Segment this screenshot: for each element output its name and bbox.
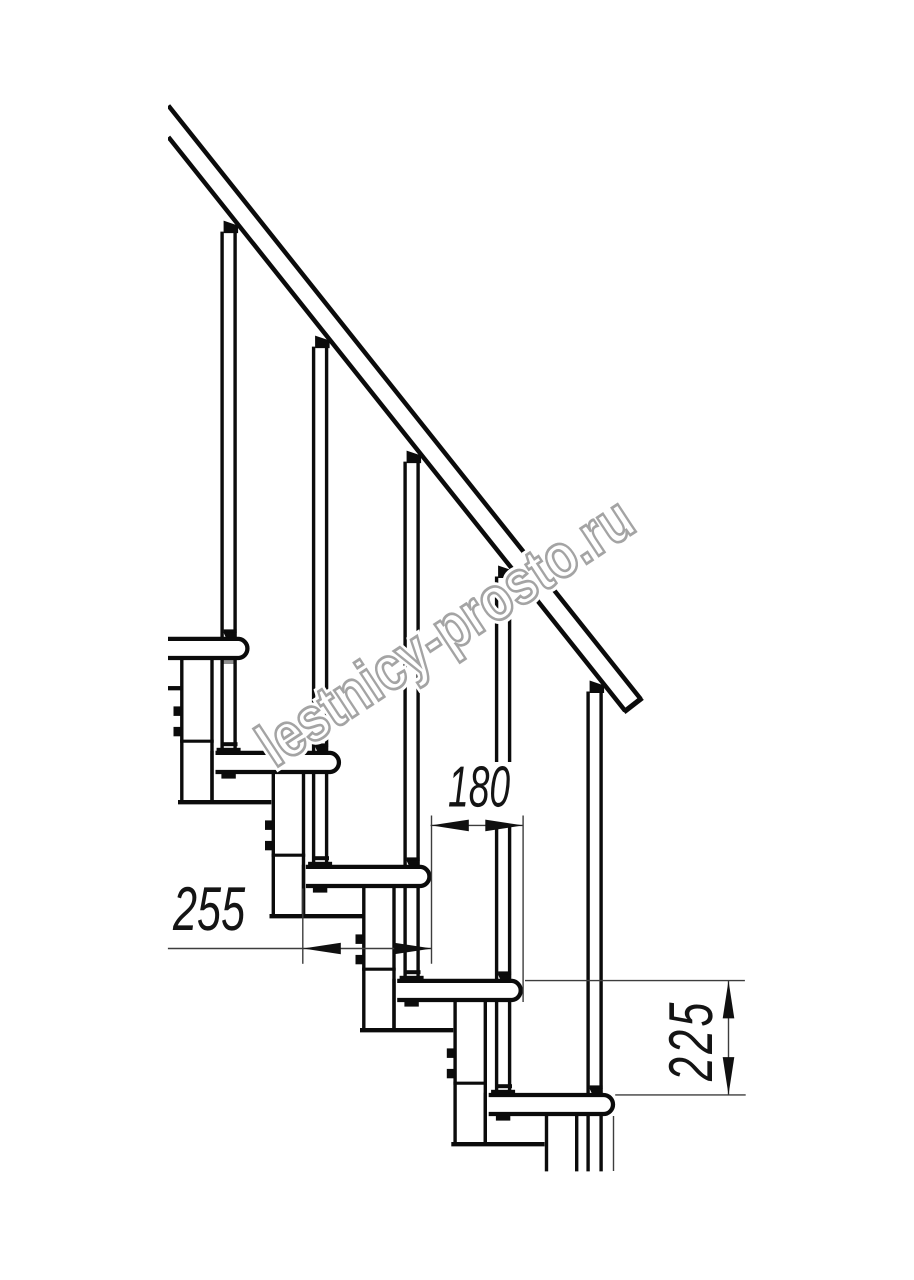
svg-text:255: 255	[172, 875, 245, 944]
svg-text:180: 180	[448, 755, 510, 820]
svg-text:225: 225	[657, 999, 726, 1081]
